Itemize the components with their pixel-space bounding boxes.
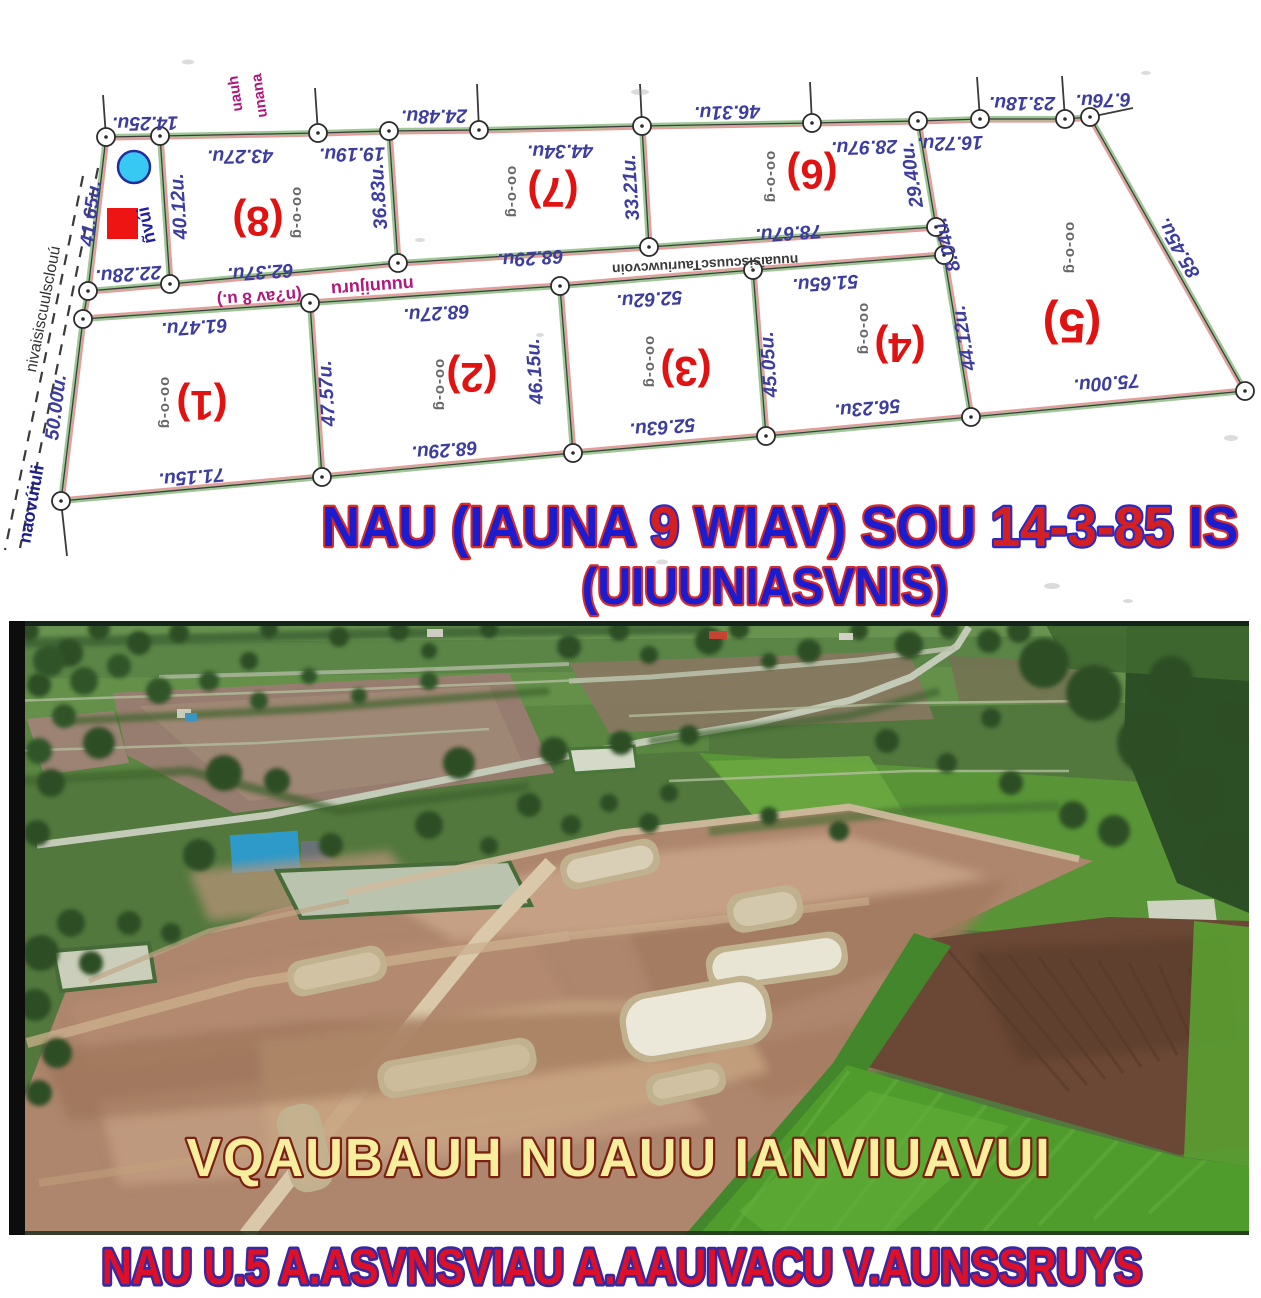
svg-text:VQAUBAUH NUAUU IANVIUAVUI: VQAUBAUH NUAUU IANVIUAVUI [186,1128,1051,1188]
svg-text:NAU U.5 A.ASVNSVIAU A.AAUIVACU: NAU U.5 A.ASVNSVIAU A.AAUIVACU V.AUNSSRU… [102,1238,1143,1294]
svg-text:(UIUUNIASVNIS): (UIUUNIASVNIS) [582,558,949,616]
svg-text:NAU (IAUNA 9 WIAV) SOU 14-3-85: NAU (IAUNA 9 WIAV) SOU 14-3-85 IS [322,494,1239,558]
